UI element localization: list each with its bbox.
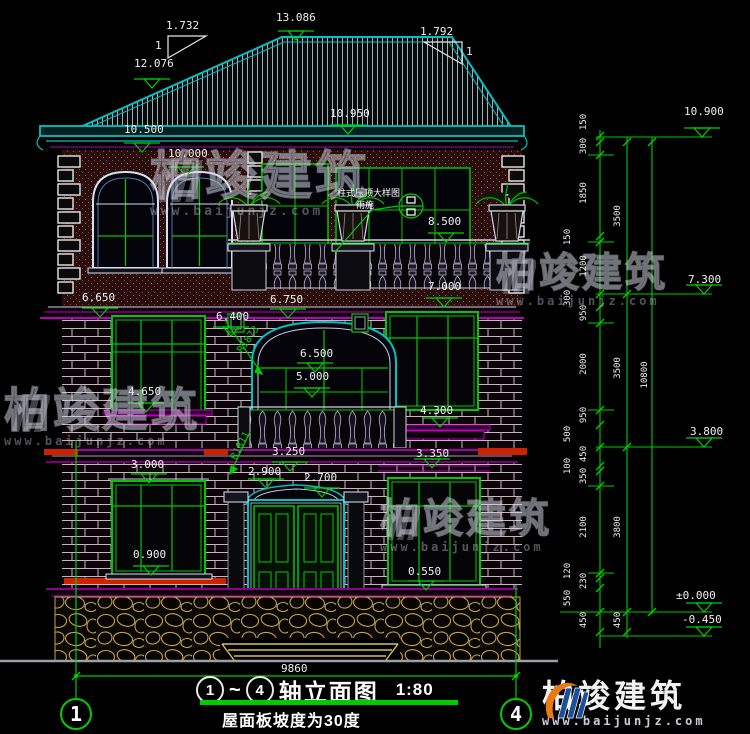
plinth-band [46, 588, 518, 597]
detail-callout-text: 柱式压顶大样图 [337, 189, 400, 199]
title-underline [200, 700, 458, 705]
title-scale: 1:80 [396, 680, 434, 700]
dim-label-total: 10800 [640, 353, 650, 397]
dim-label: 300 [579, 124, 589, 168]
dim-label-storey: 3500 [613, 346, 623, 390]
dim-label: 950 [579, 291, 589, 335]
dim-label: 1850 [579, 171, 589, 215]
title-tilde: ~ [229, 679, 241, 702]
eave-band [40, 126, 524, 136]
elevation-label: 6.500 [300, 348, 333, 360]
dim-label: 230 [579, 559, 589, 603]
red-accent-bar [44, 449, 78, 455]
elevation-label: 3.000 [131, 459, 164, 471]
slope-run-label: 1.732 [166, 20, 199, 32]
dim-label-storey: 3500 [613, 194, 623, 238]
cad-elevation-screenshot: 13.086 12.076 10.500 10.000 10.950 8.500… [0, 0, 750, 734]
elevation-label: 10.000 [168, 148, 208, 160]
elevation-label: 3.250 [272, 446, 305, 458]
elevation-label: 3.350 [416, 448, 449, 460]
elevation-label: 6.650 [82, 292, 115, 304]
elevation-label: ±0.000 [676, 590, 716, 602]
arched-window-left-1 [88, 172, 163, 273]
dim-label: 950 [579, 393, 589, 437]
hip-roof [37, 37, 527, 150]
dim-label-storey: 3800 [613, 505, 623, 549]
elevation-label: -0.450 [682, 614, 722, 626]
elevation-label: 0.550 [408, 566, 441, 578]
elevation-label: 10.950 [330, 108, 370, 120]
roof-slope-note: 屋面板坡度为30度 [222, 707, 361, 731]
balcony-balustrade [228, 240, 530, 290]
dim-label: 2100 [579, 505, 589, 549]
red-accent-bar [478, 448, 527, 455]
window-2f-left [104, 316, 212, 424]
elevation-label: 6.400 [216, 311, 249, 323]
dim-label: 300 [563, 276, 573, 320]
elevation-label: 7.000 [428, 281, 461, 293]
elevation-label: 2.900 [248, 466, 281, 478]
slope-run-label: 1.792 [420, 26, 453, 38]
elevation-label: 8.500 [428, 216, 461, 228]
dim-label: 450 [579, 598, 589, 642]
elevation-label: 12.076 [134, 58, 174, 70]
dim-label: 1200 [579, 244, 589, 288]
slope-rise-label: 1 [466, 46, 473, 58]
elevation-label: 4.650 [128, 386, 161, 398]
small-balcony-balustrade [238, 407, 406, 448]
dim-label: 150 [563, 215, 573, 259]
dim-label: 350 [579, 454, 589, 498]
slope-rise-label: 1 [155, 40, 162, 52]
elevation-label: 2.700 [304, 472, 337, 484]
elevation-label: 6.750 [270, 294, 303, 306]
slope-symbol-left [168, 36, 206, 58]
arched-window-left-2 [162, 172, 237, 273]
detail-callout-text: 雨施 [356, 201, 374, 211]
dim-label-storey: 450 [613, 598, 623, 642]
elevation-drawing [0, 0, 750, 734]
elevation-label: 4.300 [420, 405, 453, 417]
red-accent-bar [204, 449, 228, 455]
elevation-label: 3.800 [690, 426, 723, 438]
dim-label: 550 [563, 576, 573, 620]
elevation-label: 7.300 [688, 274, 721, 286]
elevation-label: 10.500 [124, 124, 164, 136]
dim-label: 100 [563, 444, 573, 488]
entrance-steps [220, 638, 400, 662]
elevation-label: 10.900 [684, 106, 724, 118]
balcony-door-center [262, 164, 328, 250]
elevation-label: 0.900 [133, 549, 166, 561]
axis-number-1: 1 [61, 702, 91, 726]
elevation-label: 5.000 [296, 371, 329, 383]
dim-label: 2000 [579, 342, 589, 386]
elevation-label: 13.086 [276, 12, 316, 24]
axis-number-4: 4 [501, 702, 531, 726]
